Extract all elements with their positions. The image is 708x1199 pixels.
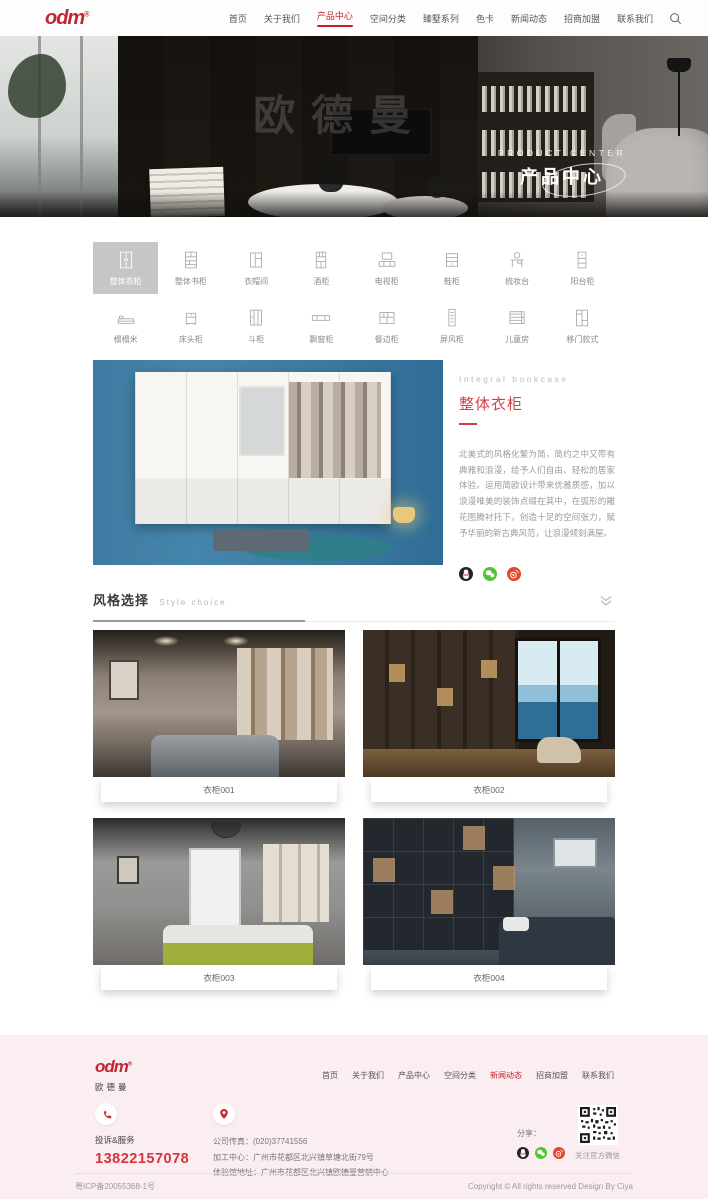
nav-contact[interactable]: 联系我们 [617, 12, 653, 25]
product-card-label: 衣柜002 [371, 777, 607, 802]
card-wardrobe [237, 648, 333, 740]
category-shoe-cabinet[interactable]: 鞋柜 [419, 242, 484, 294]
section-subtitle: Style choice [159, 598, 226, 607]
category-label: 榻榻米 [114, 334, 138, 345]
banner-caption: PRODUCT CENTER 产品中心 [492, 148, 632, 189]
qq-share-icon[interactable] [517, 1147, 529, 1159]
category-chest-of-drawers[interactable]: 斗柜 [224, 300, 289, 352]
category-label: 鞋柜 [444, 276, 460, 287]
card-wardrobe [263, 844, 329, 922]
header: odm® 首页 关于我们 产品中心 空间分类 臻墅系列 色卡 新闻动态 招商加盟… [0, 0, 708, 36]
card-pillow [503, 917, 529, 931]
card-lit-shelf [463, 826, 485, 850]
product-title: 整体衣柜 [459, 393, 615, 414]
product-card-image [363, 818, 615, 965]
footer: odm® 欧德曼 首页 关于我们 产品中心 空间分类 新闻动态 招商加盟 联系我… [0, 1035, 708, 1199]
category-label: 飘窗柜 [309, 334, 333, 345]
category-label: 酒柜 [313, 276, 329, 287]
share-label: 分享： [517, 1128, 541, 1139]
category-sliding-door-style[interactable]: 移门款式 [550, 300, 615, 352]
nightstand-icon [180, 307, 202, 329]
style-choice-section-header: 风格选择 Style choice [93, 590, 615, 622]
nav-products[interactable]: 产品中心 [317, 9, 353, 27]
category-grid: 整体衣柜 整体书柜 衣帽间 酒柜 电视柜 鞋柜 梳妆台 阳台柜 [93, 242, 615, 352]
product-card-image [363, 630, 615, 777]
footer-share-block: 分享： [517, 1105, 620, 1161]
card-lounge-chair [537, 737, 581, 763]
category-tatami[interactable]: 榻榻米 [93, 300, 158, 352]
category-label: 屏风柜 [440, 334, 464, 345]
banner-floor-lamp [678, 66, 680, 136]
banner-window-frame [80, 36, 83, 217]
wechat-qr-code [578, 1105, 618, 1145]
category-tv-cabinet[interactable]: 电视柜 [354, 242, 419, 294]
banner-lamp-shade [667, 58, 691, 72]
product-share-row [459, 567, 615, 581]
product-card-label: 衣柜003 [101, 965, 337, 990]
category-label: 餐边柜 [375, 334, 399, 345]
phone-icon [95, 1103, 117, 1125]
category-integral-bookcase[interactable]: 整体书柜 [158, 242, 223, 294]
card-wall-art [117, 856, 139, 884]
product-card-label: 衣柜001 [101, 777, 337, 802]
category-label: 儿童房 [505, 334, 529, 345]
card-lit-shelf [373, 858, 395, 882]
product-image-bench [213, 529, 309, 551]
category-label: 整体衣柜 [110, 276, 142, 287]
product-image-open-closet [289, 382, 381, 478]
category-sideboard[interactable]: 餐边柜 [354, 300, 419, 352]
product-image-lamp [393, 507, 415, 523]
footer-nav-contact[interactable]: 联系我们 [582, 1070, 614, 1081]
wechat-share-icon[interactable] [483, 567, 497, 581]
bay-window-cabinet-icon [310, 307, 332, 329]
footer-share-icons [517, 1147, 565, 1159]
sideboard-icon [376, 307, 398, 329]
footer-qr-block: 关注官方微信 [575, 1105, 620, 1161]
dresser-icon [506, 249, 528, 271]
footer-share-left: 分享： [517, 1128, 565, 1161]
card-spotlight [223, 636, 249, 646]
nav-villa-series[interactable]: 臻墅系列 [423, 12, 459, 25]
card-bed [151, 735, 279, 777]
nav-spaces[interactable]: 空间分类 [370, 12, 406, 25]
section-underline [93, 620, 305, 622]
weibo-share-icon[interactable] [507, 567, 521, 581]
product-description: 北美式的风格化繁为简，简约之中又带有典雅和浪漫，给予人们自由、轻松的居家体验。运… [459, 447, 615, 541]
footer-nav-franchise[interactable]: 招商加盟 [536, 1070, 568, 1081]
section-title: 风格选择 [93, 593, 149, 608]
category-bay-window-cabinet[interactable]: 飘窗柜 [289, 300, 354, 352]
card-lit-shelf [493, 866, 515, 890]
location-pin-icon [213, 1103, 235, 1125]
category-screen-cabinet[interactable]: 屏风柜 [419, 300, 484, 352]
logo-registered-mark: ® [84, 11, 88, 18]
factory-address: 加工中心：广州市花都区北兴镇草塘北街79号 [213, 1150, 517, 1166]
category-label: 斗柜 [248, 334, 264, 345]
bookcase-icon [180, 249, 202, 271]
card-wall-art [109, 660, 139, 700]
nav-color-card[interactable]: 色卡 [476, 12, 494, 25]
category-label: 梳妆台 [505, 276, 529, 287]
card-lit-shelf [481, 660, 497, 678]
nav-news[interactable]: 新闻动态 [511, 12, 547, 25]
footer-service-block: 投诉&服务 13822157078 [95, 1103, 213, 1167]
main-nav: 首页 关于我们 产品中心 空间分类 臻墅系列 色卡 新闻动态 招商加盟 联系我们 [229, 9, 653, 27]
category-label: 电视柜 [375, 276, 399, 287]
category-wine-cabinet[interactable]: 酒柜 [289, 242, 354, 294]
product-card-1[interactable]: 衣柜001 [93, 630, 345, 802]
cloakroom-icon [245, 249, 267, 271]
nav-home[interactable]: 首页 [229, 12, 247, 25]
qq-share-icon[interactable] [459, 567, 473, 581]
card-wardrobe [363, 818, 514, 950]
product-card-image [93, 818, 345, 965]
category-label: 床头柜 [179, 334, 203, 345]
banner-subtitle-en: PRODUCT CENTER [492, 148, 632, 158]
card-lit-shelf [437, 688, 453, 706]
category-kids-room[interactable]: 儿童房 [485, 300, 550, 352]
sliding-door-icon [571, 307, 593, 329]
search-icon[interactable] [669, 12, 682, 25]
tatami-icon [115, 307, 137, 329]
copyright-text: Copyright © All rights reserved Design B… [468, 1182, 633, 1191]
card-spotlight [153, 636, 179, 646]
icp-record-number: 粤ICP备20055368-1号 [75, 1181, 155, 1192]
footer-nav-home[interactable]: 首页 [322, 1070, 338, 1081]
footer-logo-text: odm [95, 1057, 128, 1076]
banner-floor-shadow [0, 191, 708, 217]
card-chandelier [211, 822, 241, 838]
category-label: 整体书柜 [175, 276, 207, 287]
company-fax: 公司传真：(020)37741556 [213, 1134, 517, 1150]
footer-logo-subtitle: 欧德曼 [95, 1081, 131, 1093]
footer-nav-products[interactable]: 产品中心 [398, 1070, 430, 1081]
footer-address-block: 公司传真：(020)37741556 加工中心：广州市花都区北兴镇草塘北街79号… [213, 1103, 517, 1181]
card-door [189, 848, 241, 932]
nav-franchise[interactable]: 招商加盟 [564, 12, 600, 25]
footer-logo[interactable]: odm® 欧德曼 [95, 1057, 131, 1093]
banner-watermark: 欧德曼 [253, 82, 427, 143]
footer-nav-spaces[interactable]: 空间分类 [444, 1070, 476, 1081]
category-cloakroom[interactable]: 衣帽间 [224, 242, 289, 294]
footer-nav-news[interactable]: 新闻动态 [490, 1070, 522, 1081]
page: odm® 首页 关于我们 产品中心 空间分类 臻墅系列 色卡 新闻动态 招商加盟… [0, 0, 708, 1199]
bunk-bed-icon [506, 307, 528, 329]
footer-nav-about[interactable]: 关于我们 [352, 1070, 384, 1081]
banner-wire-basket [318, 162, 344, 192]
footer-logo-registered-mark: ® [128, 1061, 131, 1067]
product-image-glass-door [239, 386, 285, 456]
footer-contact-row: 投诉&服务 13822157078 公司传真：(020)37741556 加工中… [0, 1093, 708, 1181]
wechat-share-icon[interactable] [535, 1147, 547, 1159]
card-lit-shelf [431, 890, 453, 914]
footer-top-row: odm® 欧德曼 首页 关于我们 产品中心 空间分类 新闻动态 招商加盟 联系我… [0, 1035, 708, 1093]
product-detail-section: Integral bookcase 整体衣柜 北美式的风格化繁为简，简约之中又带… [93, 360, 615, 581]
category-balcony-cabinet[interactable]: 阳台柜 [550, 242, 615, 294]
wardrobe-icon [115, 249, 137, 271]
category-label: 移门款式 [566, 334, 598, 345]
product-info: Integral bookcase 整体衣柜 北美式的风格化繁为简，简约之中又带… [459, 360, 615, 581]
product-card-image [93, 630, 345, 777]
service-label: 投诉&服务 [95, 1134, 213, 1146]
product-card-4[interactable]: 衣柜004 [363, 818, 615, 990]
category-label: 衣帽间 [244, 276, 268, 287]
footer-bottom-bar: 粤ICP备20055368-1号 Copyright © All rights … [75, 1173, 633, 1199]
nav-about[interactable]: 关于我们 [264, 12, 300, 25]
balcony-cabinet-icon [571, 249, 593, 271]
wine-cabinet-icon [310, 249, 332, 271]
style-cards-grid: 衣柜001 衣柜002 衣柜 [93, 630, 615, 990]
expand-chevron-down-icon[interactable] [599, 594, 613, 612]
category-nightstand[interactable]: 床头柜 [158, 300, 223, 352]
card-wall-art [553, 838, 597, 868]
shoe-cabinet-icon [441, 249, 463, 271]
weibo-share-icon[interactable] [553, 1147, 565, 1159]
product-card-label: 衣柜004 [371, 965, 607, 990]
card-lit-shelf [389, 664, 405, 682]
chest-icon [245, 307, 267, 329]
category-integral-wardrobe[interactable]: 整体衣柜 [93, 242, 158, 294]
service-phone-number: 13822157078 [95, 1151, 213, 1167]
card-window-frame [557, 638, 560, 742]
product-card-2[interactable]: 衣柜002 [363, 630, 615, 802]
card-blanket [163, 943, 313, 965]
product-card-3[interactable]: 衣柜003 [93, 818, 345, 990]
footer-nav: 首页 关于我们 产品中心 空间分类 新闻动态 招商加盟 联系我们 [322, 1070, 614, 1081]
product-image-wardrobe [135, 372, 391, 524]
logo-text: odm [45, 7, 84, 29]
title-underline [459, 423, 477, 425]
product-subtitle-en: Integral bookcase [459, 374, 615, 384]
banner-books-row [482, 86, 590, 112]
qr-caption: 关注官方微信 [575, 1150, 620, 1161]
hero-banner: 欧德曼 PRODUCT CENTER 产品中心 [0, 36, 708, 217]
site-logo[interactable]: odm® [45, 8, 88, 28]
screen-cabinet-icon [441, 307, 463, 329]
category-dresser[interactable]: 梳妆台 [485, 242, 550, 294]
tv-cabinet-icon [376, 249, 398, 271]
product-image [93, 360, 443, 565]
category-label: 阳台柜 [570, 276, 594, 287]
